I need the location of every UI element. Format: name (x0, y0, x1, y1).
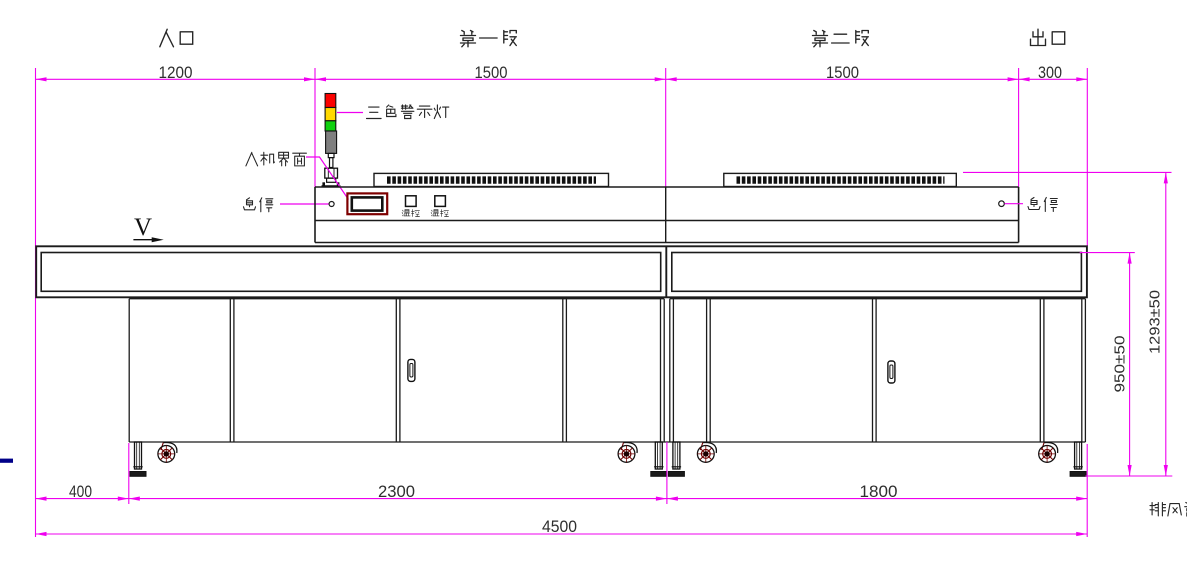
svg-text:1200: 1200 (159, 64, 193, 82)
svg-text:950±50: 950±50 (1112, 336, 1129, 393)
svg-text:1500: 1500 (826, 64, 859, 82)
svg-text:1500: 1500 (475, 64, 508, 82)
svg-text:1293±50: 1293±50 (1147, 290, 1164, 354)
svg-text:400: 400 (69, 483, 92, 501)
svg-text:1800: 1800 (860, 483, 898, 501)
svg-text:4500: 4500 (542, 518, 577, 536)
svg-text:300: 300 (1038, 64, 1062, 82)
svg-text:2300: 2300 (378, 483, 415, 501)
svg-text:V: V (134, 214, 152, 241)
